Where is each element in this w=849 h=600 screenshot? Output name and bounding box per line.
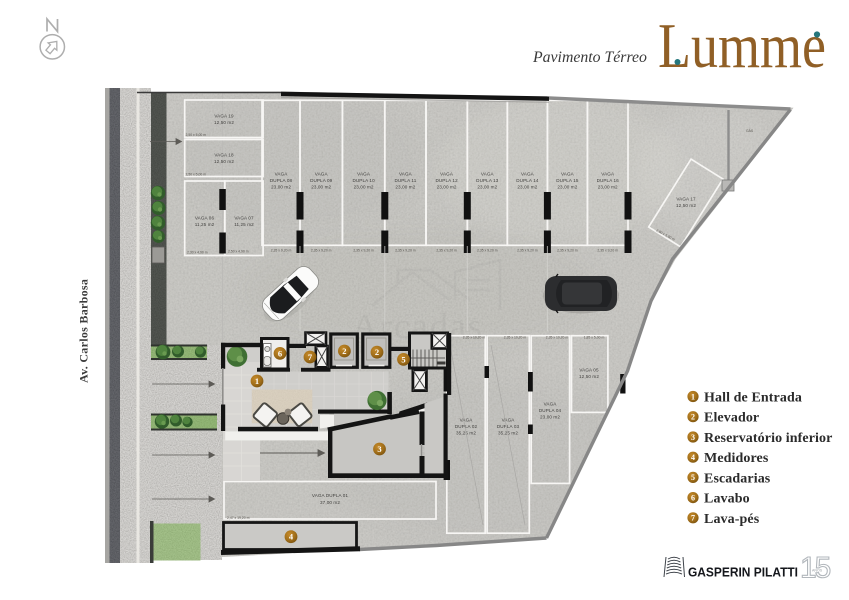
svg-text:11,25 m2: 11,25 m2 [195, 222, 215, 227]
svg-text:VAGA: VAGA [481, 172, 495, 177]
svg-text:3: 3 [691, 433, 695, 442]
svg-text:2,50 x 4,90 m: 2,50 x 4,90 m [228, 250, 249, 254]
svg-text:2: 2 [691, 413, 695, 422]
svg-text:2,35 x 9,20 m: 2,35 x 9,20 m [311, 249, 332, 253]
svg-text:2,35 x 9,20 m: 2,35 x 9,20 m [271, 249, 292, 253]
svg-text:2: 2 [342, 346, 346, 356]
svg-text:23,00 m2: 23,00 m2 [395, 185, 415, 190]
svg-text:6: 6 [278, 348, 282, 358]
svg-text:DUPLA 11: DUPLA 11 [394, 178, 416, 183]
svg-text:DUPLA 12: DUPLA 12 [435, 178, 458, 183]
svg-text:2,35 x 9,20 m: 2,35 x 9,20 m [353, 249, 374, 253]
svg-text:DUPLA 09: DUPLA 09 [310, 178, 333, 183]
svg-text:5: 5 [401, 354, 405, 364]
svg-text:2,30 x 4,90 m: 2,30 x 4,90 m [187, 251, 208, 255]
svg-text:23,00 m2: 23,00 m2 [271, 185, 291, 190]
svg-text:VAGA 06: VAGA 06 [195, 216, 215, 221]
svg-text:2,35 x 10,20 m: 2,35 x 10,20 m [546, 336, 569, 340]
svg-text:VAGA: VAGA [544, 402, 558, 407]
svg-text:VAGA: VAGA [502, 418, 516, 423]
svg-text:DUPLA 10: DUPLA 10 [352, 178, 375, 183]
svg-text:4: 4 [691, 453, 695, 462]
svg-text:VAGA 05: VAGA 05 [579, 368, 599, 373]
svg-text:2,50 x 5,00 m: 2,50 x 5,00 m [186, 133, 207, 137]
svg-text:2,35 x 9,20 m: 2,35 x 9,20 m [477, 249, 498, 253]
svg-text:DUPLA 02: DUPLA 02 [455, 424, 478, 429]
svg-text:Medidores: Medidores [704, 451, 769, 466]
svg-text:2,47 x 19,20 m: 2,47 x 19,20 m [227, 516, 250, 520]
svg-text:5: 5 [691, 473, 695, 482]
svg-text:1: 1 [691, 392, 695, 401]
svg-text:11,25 m2: 11,25 m2 [234, 222, 254, 227]
svg-text:1,85 x 5,00 m: 1,85 x 5,00 m [584, 336, 605, 340]
svg-text:12,50 m2: 12,50 m2 [214, 159, 234, 164]
svg-text:7: 7 [691, 514, 695, 523]
svg-text:DUPLA 08: DUPLA 08 [270, 178, 293, 183]
svg-text:GÁS: GÁS [746, 129, 754, 133]
svg-text:Escadarias: Escadarias [704, 471, 771, 486]
svg-text:Lumme: Lumme [658, 10, 826, 81]
svg-text:23,00 m2: 23,00 m2 [598, 185, 618, 190]
svg-text:VAGA: VAGA [275, 172, 289, 177]
svg-text:2,50 x 5,00 m: 2,50 x 5,00 m [186, 173, 207, 177]
svg-text:12,50 m2: 12,50 m2 [214, 120, 234, 125]
svg-text:Hall de Entrada: Hall de Entrada [704, 391, 802, 406]
svg-text:VAGA DUPLA 01: VAGA DUPLA 01 [312, 493, 349, 498]
svg-text:3: 3 [377, 444, 381, 454]
svg-text:23,00 m2: 23,00 m2 [311, 185, 331, 190]
svg-text:6: 6 [691, 493, 695, 502]
svg-text:2,35 x 9,20 m: 2,35 x 9,20 m [436, 249, 457, 253]
svg-text:VAGA: VAGA [521, 172, 535, 177]
svg-text:Lava-pés: Lava-pés [704, 512, 760, 527]
svg-text:2,35 x 9,20 m: 2,35 x 9,20 m [557, 249, 578, 253]
svg-text:23,00 m2: 23,00 m2 [540, 415, 560, 420]
svg-text:GASPERIN PILATTI: GASPERIN PILATTI [688, 565, 798, 580]
svg-text:VAGA: VAGA [460, 418, 474, 423]
svg-text:VAGA: VAGA [399, 172, 413, 177]
svg-text:2,35 x 10,20 m: 2,35 x 10,20 m [463, 336, 486, 340]
svg-text:DUPLA 04: DUPLA 04 [539, 408, 562, 413]
svg-text:23,00 m2: 23,00 m2 [437, 185, 457, 190]
svg-text:23,00 m2: 23,00 m2 [477, 185, 497, 190]
svg-text:Av. Carlos Barbosa: Av. Carlos Barbosa [77, 279, 91, 383]
svg-text:VAGA 19: VAGA 19 [214, 114, 234, 119]
svg-text:12,50 m2: 12,50 m2 [676, 203, 696, 208]
svg-text:DUPLA 15: DUPLA 15 [556, 178, 579, 183]
svg-text:2,35 x 9,20 m: 2,35 x 9,20 m [517, 249, 538, 253]
svg-text:VAGA: VAGA [601, 172, 615, 177]
svg-text:Reservatório inferior: Reservatório inferior [704, 431, 832, 446]
svg-text:VAGA 18: VAGA 18 [214, 153, 234, 158]
svg-text:2,35 x 9,20 m: 2,35 x 9,20 m [395, 249, 416, 253]
svg-text:2,35 x 10,20 m: 2,35 x 10,20 m [504, 336, 527, 340]
svg-text:37,00 m2: 37,00 m2 [320, 500, 340, 505]
svg-text:Pavimento Térreo: Pavimento Térreo [532, 49, 647, 66]
svg-text:VAGA: VAGA [440, 172, 454, 177]
svg-text:DUPLA 16: DUPLA 16 [597, 178, 620, 183]
svg-text:VAGA: VAGA [357, 172, 371, 177]
svg-text:2: 2 [375, 347, 379, 357]
svg-text:VAGA: VAGA [315, 172, 329, 177]
svg-text:Elevador: Elevador [704, 411, 759, 426]
svg-text:2,35 x 9,20 m: 2,35 x 9,20 m [597, 249, 618, 253]
svg-text:1: 1 [255, 376, 259, 386]
svg-text:VAGA: VAGA [561, 172, 575, 177]
svg-text:12,50 m2: 12,50 m2 [579, 374, 599, 379]
svg-text:23,00 m2: 23,00 m2 [557, 185, 577, 190]
svg-text:VAGA 17: VAGA 17 [676, 197, 696, 202]
svg-text:DUPLA 14: DUPLA 14 [516, 178, 539, 183]
svg-text:DUPLA 13: DUPLA 13 [476, 178, 499, 183]
svg-text:23,00 m2: 23,00 m2 [354, 185, 374, 190]
svg-text:DUPLA 03: DUPLA 03 [497, 424, 520, 429]
svg-text:VAGA 07: VAGA 07 [234, 216, 254, 221]
svg-text:23,00 m2: 23,00 m2 [517, 185, 537, 190]
svg-text:Lavabo: Lavabo [704, 492, 750, 507]
svg-text:ANOS: ANOS [812, 569, 823, 573]
